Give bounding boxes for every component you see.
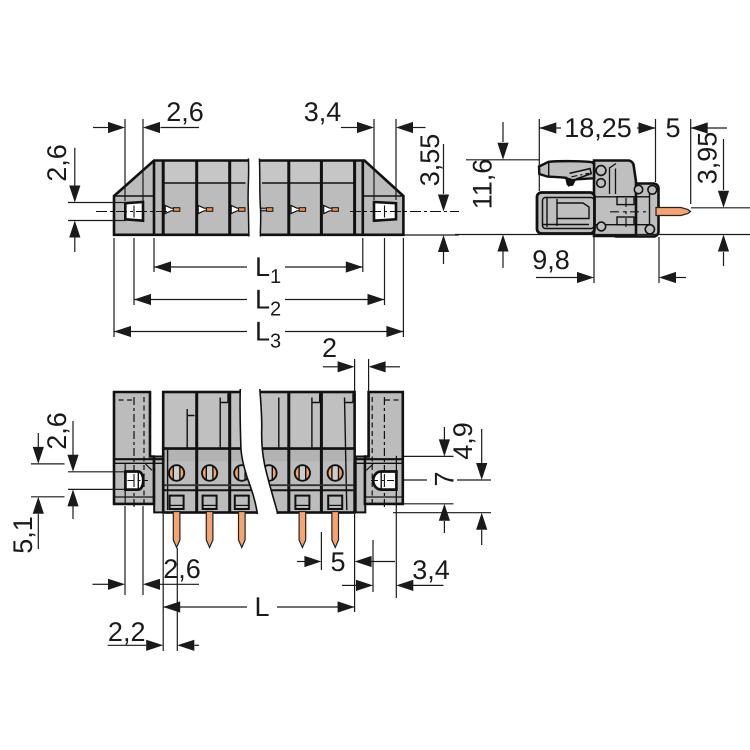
- svg-text:2,6: 2,6: [166, 97, 204, 127]
- svg-text:1: 1: [270, 266, 281, 288]
- svg-text:3,4: 3,4: [412, 555, 450, 585]
- svg-text:L: L: [254, 592, 269, 622]
- svg-text:4,9: 4,9: [448, 422, 478, 460]
- svg-text:2,6: 2,6: [42, 144, 72, 182]
- svg-text:3,4: 3,4: [304, 97, 342, 127]
- svg-text:L: L: [255, 252, 270, 282]
- svg-text:L: L: [255, 317, 270, 347]
- svg-text:2,6: 2,6: [42, 412, 72, 450]
- svg-text:7: 7: [430, 471, 460, 486]
- svg-text:11,6: 11,6: [468, 159, 498, 210]
- svg-text:2,6: 2,6: [163, 554, 201, 584]
- svg-text:9,8: 9,8: [532, 245, 570, 275]
- svg-text:3: 3: [270, 331, 281, 353]
- svg-text:18,25: 18,25: [564, 113, 632, 143]
- svg-text:2: 2: [270, 299, 281, 321]
- svg-text:L: L: [255, 285, 270, 315]
- svg-text:2: 2: [322, 333, 337, 363]
- svg-text:5: 5: [330, 547, 345, 577]
- svg-text:3,95: 3,95: [693, 132, 723, 185]
- svg-text:3,55: 3,55: [415, 134, 445, 187]
- svg-text:2,2: 2,2: [108, 617, 146, 647]
- svg-text:5: 5: [665, 113, 680, 143]
- svg-text:5,1: 5,1: [8, 516, 38, 554]
